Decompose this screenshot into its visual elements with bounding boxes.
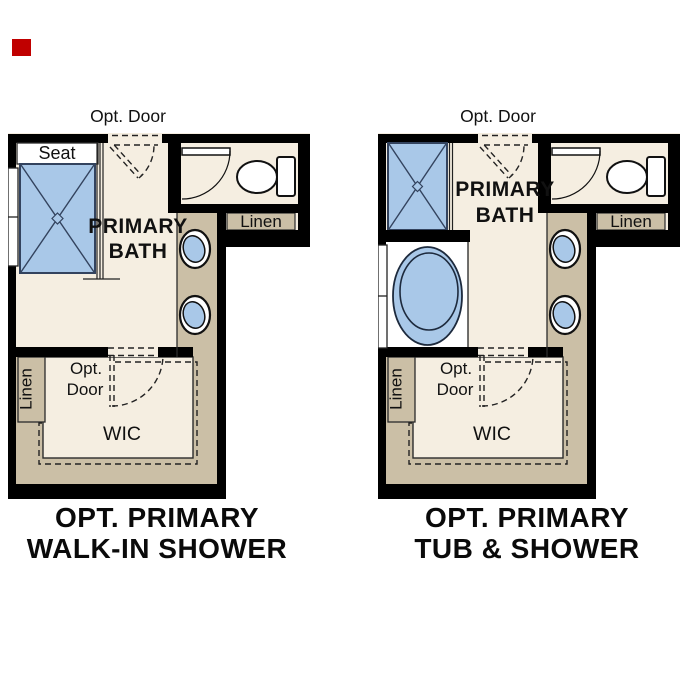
wic-label: WIC <box>103 423 141 445</box>
linen-lower-label: Linen <box>17 368 36 410</box>
caption-line1: OPT. PRIMARY <box>377 502 677 533</box>
caption-line2: TUB & SHOWER <box>377 533 677 564</box>
caption-tub-shower: OPT. PRIMARY TUB & SHOWER <box>377 502 677 564</box>
primary-bath-label-line1: PRIMARY <box>455 178 555 201</box>
floorplan-walk-in-shower: Seat PRIMARY BATH Linen Opt. Door WIC Li… <box>8 133 310 499</box>
wall-below-shower <box>378 230 470 242</box>
primary-bath-label-line2: BATH <box>109 240 168 263</box>
linen-lower-label: Linen <box>387 368 406 410</box>
window-left <box>8 168 18 266</box>
opt-door-label-right: Opt. Door <box>428 106 568 127</box>
wic-label: WIC <box>473 423 511 445</box>
floorplan-tub-shower: PRIMARY BATH Linen Opt. Door WIC Linen <box>378 133 680 499</box>
window-left <box>378 245 387 348</box>
opt-door-lower-label-line2: Door <box>437 380 474 399</box>
linen-upper-label: Linen <box>610 212 652 231</box>
primary-bath-label-line2: BATH <box>476 204 535 227</box>
opt-door-label-left: Opt. Door <box>58 106 198 127</box>
caption-walk-in-shower: OPT. PRIMARY WALK-IN SHOWER <box>7 502 307 564</box>
floorplan-page: Opt. Door Opt. Door <box>0 0 687 687</box>
caption-line1: OPT. PRIMARY <box>7 502 307 533</box>
opt-door-lower-label-line2: Door <box>67 380 104 399</box>
opt-door-lower-label-line1: Opt. <box>440 359 472 378</box>
red-marker-rect <box>12 39 31 56</box>
seat-label: Seat <box>38 143 75 163</box>
opt-door-lower-label-line1: Opt. <box>70 359 102 378</box>
caption-line2: WALK-IN SHOWER <box>7 533 307 564</box>
primary-bath-label-line1: PRIMARY <box>88 215 188 238</box>
walk-in-shower-zone <box>8 143 120 279</box>
red-marker <box>12 39 31 56</box>
linen-upper-label: Linen <box>240 212 282 231</box>
